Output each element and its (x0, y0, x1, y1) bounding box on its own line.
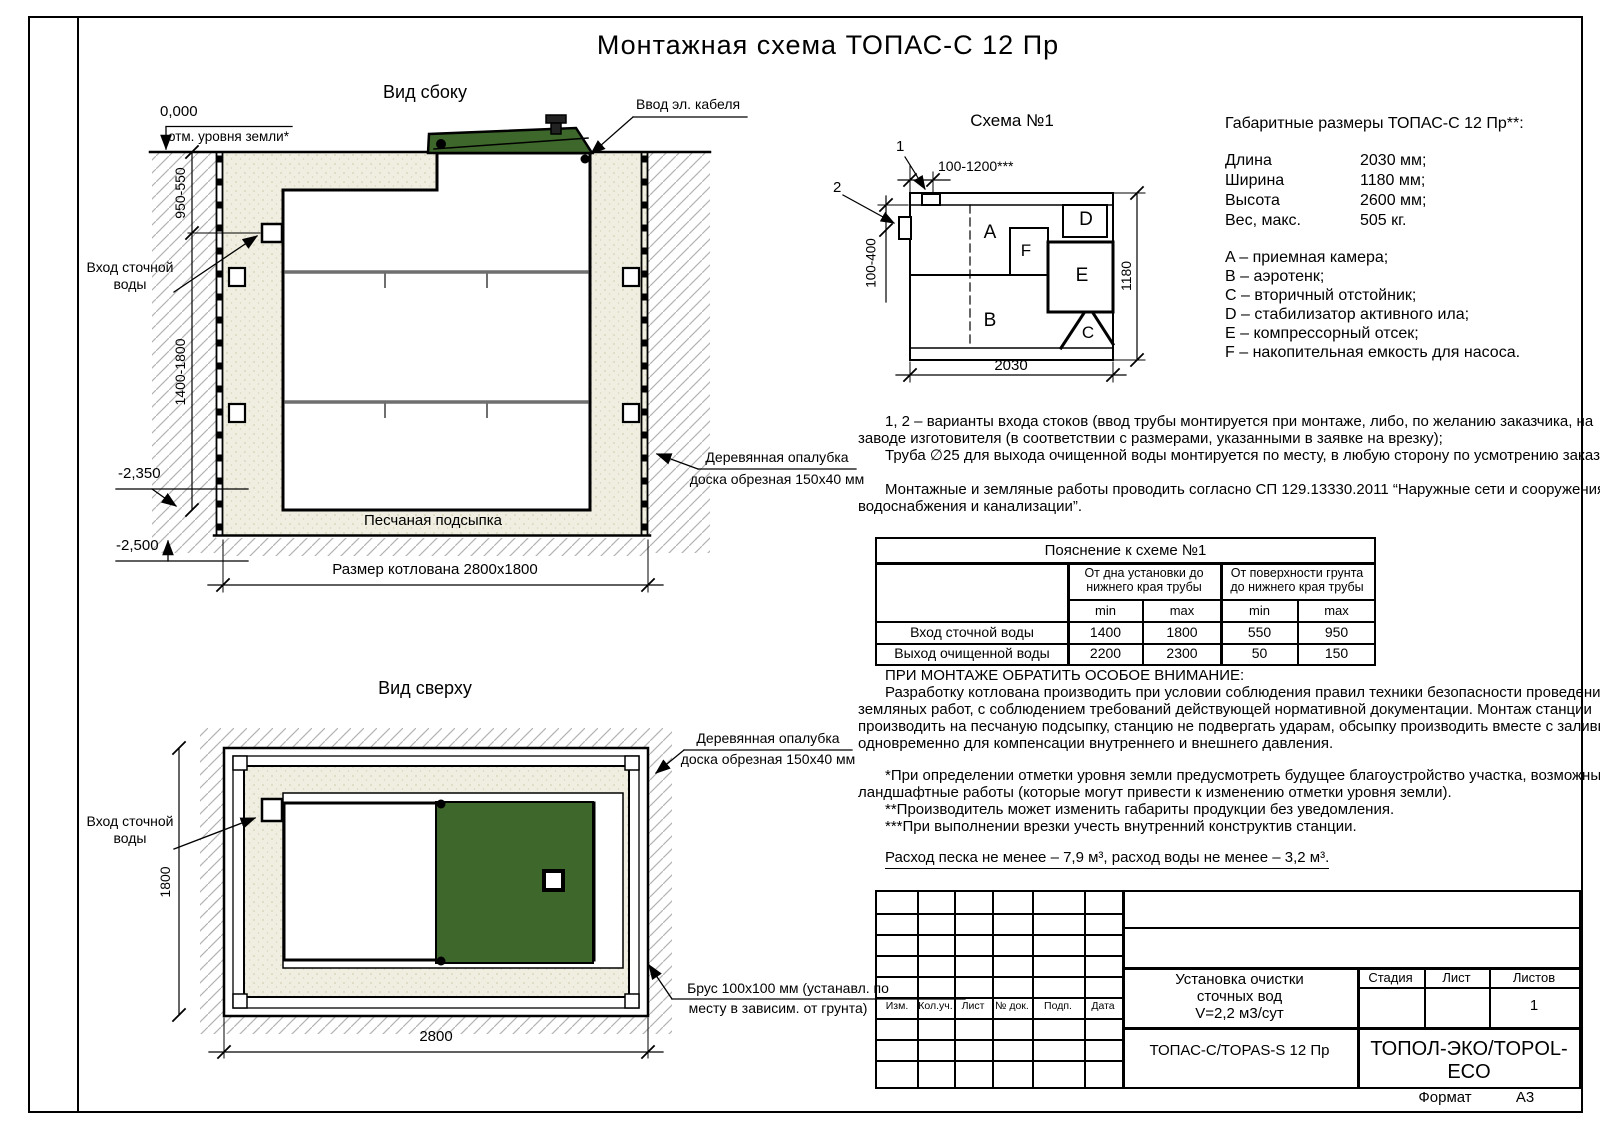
sheet-label: Лист (1424, 970, 1489, 985)
lid-hatch-top (544, 871, 563, 890)
formwork-label-top-2: доска обрезная 150х40 мм (681, 752, 856, 768)
footnote-line: *При определении отметки уровня земли пр… (885, 768, 1600, 785)
titleblock-col: Подп. (1032, 1000, 1084, 1012)
specs-heading: Габаритные размеры ТОПАС-С 12 Пр**: (1225, 115, 1524, 133)
note-line: Монтажные и земляные работы проводить со… (885, 482, 1600, 499)
note-line: заводе изготовителя (в соответствии с ра… (858, 431, 1443, 448)
schema-label-c: C (1082, 323, 1094, 342)
footnote-line: **Производитель может изменить габариты … (885, 802, 1394, 819)
model-name: ТОПАС-С/TOPAS-S 12 Пр (1122, 1042, 1357, 1059)
table-row-label: Вход сточной воды (877, 624, 1067, 640)
dim-2800: 2800 (419, 1029, 452, 1046)
inlet-pipe-side (262, 224, 282, 242)
sheets-label: Листов (1489, 970, 1579, 985)
spec-value: 1180 мм; (1360, 172, 1425, 190)
sheets-value: 1 (1489, 997, 1579, 1014)
elevation-2500: -2,500 (116, 538, 159, 555)
inlet-label-top-2: воды (114, 831, 147, 847)
spec-label: Вес, макс. (1225, 212, 1301, 230)
legend-item: B – аэротенк; (1225, 268, 1324, 286)
spec-label: Длина (1225, 152, 1272, 170)
beam-label-2: месту в зависим. от грунта) (689, 1001, 868, 1017)
schema-title: Схема №1 (970, 111, 1054, 130)
attention-line: одновременно для компенсации внутреннего… (858, 736, 1333, 753)
elevation-2350: -2,350 (118, 466, 161, 483)
schema-label-a: A (984, 222, 997, 243)
table-cell: 1800 (1144, 624, 1220, 640)
schema-dim-top: 100-1200*** (938, 159, 1014, 175)
schema-label-e: E (1076, 265, 1089, 286)
stage-label: Стадия (1357, 970, 1424, 985)
table-subheader: max (1299, 603, 1374, 618)
legend-item: A – приемная камера; (1225, 249, 1388, 267)
table-cell: 50 (1222, 645, 1297, 661)
note-line: 1, 2 – варианты входа стоков (ввод трубы… (885, 414, 1593, 431)
attention-line: земляных работ, с соблюдением требований… (858, 702, 1592, 719)
drawing-sheet: Монтажная схема ТОПАС-С 12 Пр Вид сбоку … (0, 0, 1600, 1131)
dim-950-550: 950-550 (173, 167, 189, 218)
schema-dim-right: 1180 (1119, 261, 1135, 291)
title-block: Изм. Кол.уч. Лист № док. Подп. Дата Уста… (875, 890, 1581, 1089)
consumption-note: Расход песка не менее – 7,9 м³, расход в… (885, 850, 1329, 869)
dim-1400-1800: 1400-1800 (173, 339, 189, 406)
soil-hatch-right (648, 153, 710, 553)
attention-line: ПРИ МОНТАЖЕ ОБРАТИТЬ ОСОБОЕ ВНИМАНИЕ: (885, 668, 1244, 685)
doc-title-line: Установка очистки (1122, 971, 1357, 988)
inlet-label-side-2: воды (114, 277, 147, 293)
legend-item: D – стабилизатор активного ила; (1225, 306, 1469, 324)
format-label: Формат (1418, 1090, 1471, 1107)
titleblock-col: Изм. (877, 1000, 917, 1012)
schema-label-b: B (984, 310, 997, 331)
doc-title-line: V=2,2 м3/сут (1122, 1005, 1357, 1022)
inlet-label-side-1: Вход сточной (87, 260, 174, 276)
schema-callout-2: 2 (833, 180, 841, 197)
table-cell: 2300 (1144, 645, 1220, 661)
spec-value: 505 кг. (1360, 212, 1406, 230)
schema-label-d: D (1079, 209, 1093, 230)
side-view-title: Вид сбоку (383, 82, 467, 102)
table-cell: 150 (1299, 645, 1374, 661)
table-cell: 950 (1299, 624, 1374, 640)
attention-line: Разработку котлована производить при усл… (885, 685, 1600, 702)
tank-lid-top (436, 802, 593, 963)
legend-item: C – вторичный отстойник; (1225, 287, 1416, 305)
table-row-label: Выход очищенной воды (877, 645, 1067, 661)
ground-level-note: отм. уровня земли* (168, 129, 289, 144)
company-name: ТОПОЛ-ЭКО/TOPOL-ECO (1359, 1038, 1579, 1084)
footnote-line: ***При выполнении врезки учесть внутренн… (885, 819, 1357, 836)
cable-entry-label: Ввод эл. кабеля (636, 97, 740, 113)
vent-cap (546, 115, 566, 123)
schema-inlet-1 (922, 194, 940, 205)
table-cell: 550 (1222, 624, 1297, 640)
table-cell: 1400 (1069, 624, 1142, 640)
soil-hatch-bottom (216, 538, 650, 556)
titleblock-col: № док. (992, 1000, 1032, 1012)
table-group-header: От дна установки до нижнего края трубы (1071, 566, 1217, 595)
schema-callout-1: 1 (896, 139, 904, 156)
zero-elevation-mark: 0,000 (160, 104, 198, 121)
inlet-label-top-1: Вход сточной (87, 814, 174, 830)
legend-item: F – накопительная емкость для насоса. (1225, 344, 1520, 362)
dim-1800: 1800 (158, 866, 174, 897)
formwork-label-side-2: доска обрезная 150х40 мм (690, 472, 865, 488)
table-subheader: min (1069, 603, 1142, 618)
doc-title-line: сточных вод (1122, 988, 1357, 1005)
table-cell: 2200 (1069, 645, 1142, 661)
note-line: Труба ∅25 для выхода очищенной воды монт… (885, 448, 1600, 465)
sand-bedding-label: Песчаная подсыпка (364, 513, 502, 530)
beam-label-1: Брус 100х100 мм (устанавл. по (687, 981, 889, 997)
spec-label: Ширина (1225, 172, 1284, 190)
schema-label-f: F (1021, 241, 1031, 260)
table-subheader: min (1222, 603, 1297, 618)
spec-label: Высота (1225, 192, 1280, 210)
titleblock-col: Дата (1084, 1000, 1122, 1012)
inlet-pipe-top (262, 799, 282, 821)
format-value: А3 (1516, 1090, 1534, 1107)
formwork-label-top-1: Деревянная опалубка (696, 731, 839, 747)
top-view-title: Вид сверху (378, 678, 472, 698)
table-title: Пояснение к схеме №1 (877, 542, 1374, 559)
schema-dim-bottom: 2030 (994, 358, 1027, 375)
footnote-line: ландшафтные работы (которые могут привес… (858, 785, 1452, 802)
schema-dim-left: 100-400 (863, 238, 878, 288)
page-title: Монтажная схема ТОПАС-С 12 Пр (597, 30, 1059, 60)
table-subheader: max (1144, 603, 1220, 618)
spec-value: 2600 мм; (1360, 192, 1426, 210)
titleblock-col: Кол.уч. (917, 1000, 954, 1012)
pit-size-label: Размер котлована 2800х1800 (332, 562, 537, 579)
explanation-table: Пояснение к схеме №1 От дна установки до… (875, 537, 1376, 666)
formwork-label-side-1: Деревянная опалубка (705, 450, 848, 466)
schema-inlet-2 (899, 217, 911, 239)
spec-value: 2030 мм; (1360, 152, 1426, 170)
note-line: водоснабжения и канализации”. (858, 499, 1082, 516)
titleblock-col: Лист (954, 1000, 992, 1012)
legend-item: E – компрессорный отсек; (1225, 325, 1419, 343)
tank-lid-side (428, 128, 592, 153)
tank-body-side (283, 153, 590, 510)
table-group-header: От поверхности грунта до нижнего края тр… (1223, 566, 1371, 595)
cable-entry-point (581, 155, 590, 164)
attention-line: производить на песчаную подсыпку, станци… (858, 719, 1600, 736)
